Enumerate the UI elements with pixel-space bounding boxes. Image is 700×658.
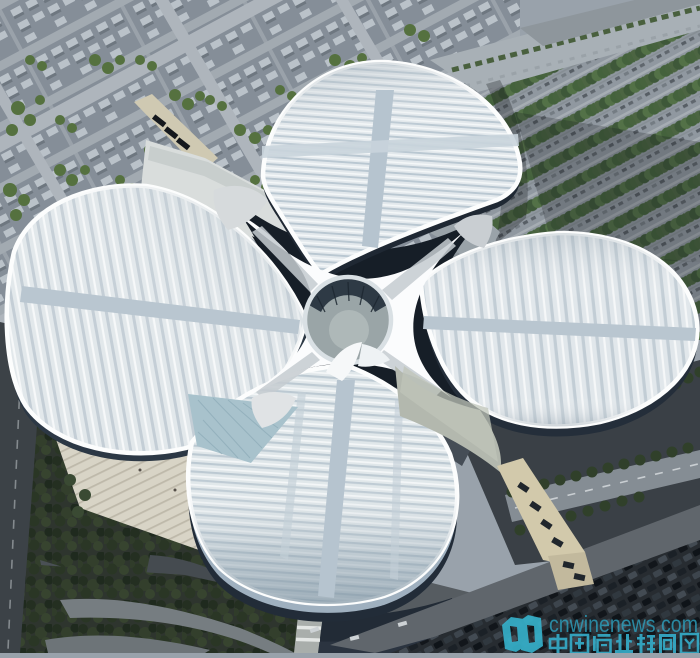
svg-text:cnwinenews.com: cnwinenews.com: [549, 611, 698, 637]
